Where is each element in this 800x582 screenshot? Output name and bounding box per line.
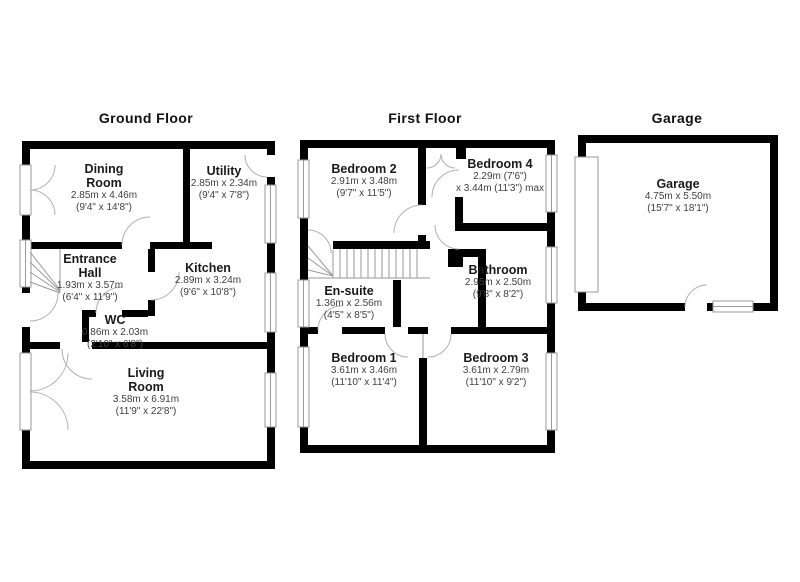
room-dimensions-metric: 2.29m (7'6") — [430, 171, 570, 183]
room-dimensions-metric: 2.85m x 4.46m — [34, 190, 174, 202]
room-dimensions-metric: 2.85m x 2.34m — [154, 178, 294, 190]
room-dimensions-metric: 3.61m x 3.46m — [294, 365, 434, 377]
garage-structure — [575, 135, 778, 312]
room-label-bedroom-4: Bedroom 4 2.29m (7'6") x 3.44m (11'3") m… — [430, 157, 570, 194]
room-label-bathroom: Bathroom 2.95m x 2.50m (9'8" x 8'2") — [428, 263, 568, 300]
room-name: Entrance Hall — [55, 252, 125, 280]
room-dimensions-imperial: (9'6" x 10'8") — [138, 287, 278, 299]
room-name: Bedroom 4 — [430, 157, 570, 171]
room-dimensions-metric: 3.58m x 6.91m — [76, 394, 216, 406]
room-name: Bedroom 1 — [294, 351, 434, 365]
room-dimensions-metric: 2.89m x 3.24m — [138, 275, 278, 287]
room-label-bedroom-1: Bedroom 1 3.61m x 3.46m (11'10" x 11'4") — [294, 351, 434, 388]
room-label-bedroom-3: Bedroom 3 3.61m x 2.79m (11'10" x 9'2") — [426, 351, 566, 388]
garage-door — [575, 157, 598, 292]
room-label-kitchen: Kitchen 2.89m x 3.24m (9'6" x 10'8") — [138, 261, 278, 298]
room-dimensions-metric: 2.91m x 3.48m — [294, 176, 434, 188]
room-dimensions-imperial: (2'10" x 6'8") — [45, 339, 185, 351]
room-dimensions-metric: 1.36m x 2.56m — [279, 298, 419, 310]
room-name: Bedroom 2 — [294, 162, 434, 176]
room-name: En-suite — [279, 284, 419, 298]
room-name: Bathroom — [428, 263, 568, 277]
room-name: Bedroom 3 — [426, 351, 566, 365]
floor-title-ground: Ground Floor — [99, 110, 193, 126]
room-label-en-suite: En-suite 1.36m x 2.56m (4'5" x 8'5") — [279, 284, 419, 321]
room-dimensions-metric: 3.61m x 2.79m — [426, 365, 566, 377]
room-dimensions-imperial: (9'4" x 7'8") — [154, 190, 294, 202]
floor-title-garage: Garage — [652, 110, 703, 126]
room-label-living-room: Living Room 3.58m x 6.91m (11'9" x 22'8"… — [76, 366, 216, 417]
room-dimensions-imperial: (4'5" x 8'5") — [279, 310, 419, 322]
floorplan-page: Ground Floor First Floor Garage Dining R… — [0, 0, 800, 582]
room-name: Dining Room — [72, 162, 136, 190]
room-dimensions-imperial: (9'4" x 14'8") — [34, 202, 174, 214]
room-name: Living Room — [114, 366, 178, 394]
room-dimensions-imperial: x 3.44m (11'3") max — [430, 183, 570, 195]
floor-title-first: First Floor — [388, 110, 462, 126]
room-label-utility: Utility 2.85m x 2.34m (9'4" x 7'8") — [154, 164, 294, 201]
room-dimensions-imperial: (9'7" x 11'5") — [294, 188, 434, 200]
room-name: Utility — [154, 164, 294, 178]
room-dimensions-imperial: (11'10" x 11'4") — [294, 377, 434, 389]
room-dimensions-imperial: (11'10" x 9'2") — [426, 377, 566, 389]
room-dimensions-imperial: (15'7" x 18'1") — [608, 203, 748, 215]
room-label-bedroom-2: Bedroom 2 2.91m x 3.48m (9'7" x 11'5") — [294, 162, 434, 199]
room-dimensions-metric: 0.86m x 2.03m — [45, 327, 185, 339]
staircase — [308, 246, 430, 278]
room-name: WC — [45, 313, 185, 327]
room-dimensions-imperial: (11'9" x 22'8") — [76, 406, 216, 418]
room-label-garage: Garage 4.75m x 5.50m (15'7" x 18'1") — [608, 177, 748, 214]
room-label-wc: WC 0.86m x 2.03m (2'10" x 6'8") — [45, 313, 185, 350]
room-dimensions-imperial: (9'8" x 8'2") — [428, 289, 568, 301]
room-name: Kitchen — [138, 261, 278, 275]
room-name: Garage — [608, 177, 748, 191]
room-dimensions-metric: 4.75m x 5.50m — [608, 191, 748, 203]
room-dimensions-metric: 2.95m x 2.50m — [428, 277, 568, 289]
room-label-dining-room: Dining Room 2.85m x 4.46m (9'4" x 14'8") — [34, 162, 174, 213]
garage-door-arc — [685, 285, 707, 307]
